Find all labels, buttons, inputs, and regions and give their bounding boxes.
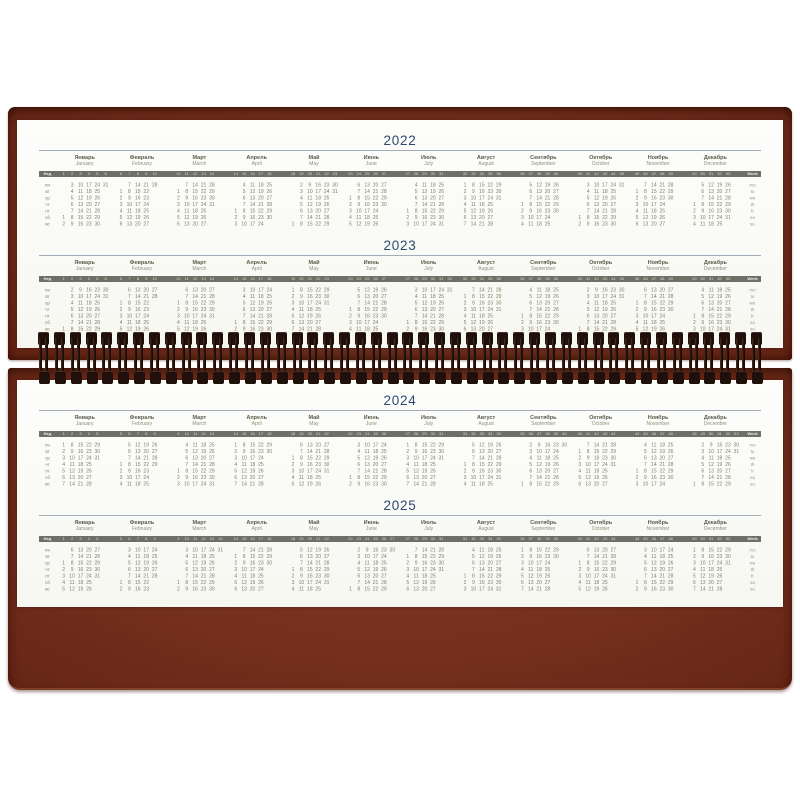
day-number: 29 [724,481,732,488]
week-number: 18 [265,431,273,437]
week-number: 19 [297,171,305,177]
day-number: 6 [576,481,584,488]
day-number: 23 [199,586,207,593]
spiral-coil [70,332,81,384]
month-day-row: 3101724 [228,221,285,228]
day-number: 19 [592,586,600,593]
day-number: 9 [68,221,76,228]
week-number: 23 [355,431,363,437]
week-bar-label-ru: Нед [39,536,56,542]
week-number: 3 [76,276,84,282]
day-number: 17 [650,481,658,488]
month-header: НоябрьNovember [629,259,686,273]
week-number: 36 [494,171,502,177]
day-number: 28 [429,481,437,488]
month-header: ИюльJuly [400,519,457,533]
week-number: 42 [592,431,600,437]
week-number: 39 [552,431,560,437]
month-name-ru: Январь [56,414,113,421]
left-gutter [39,519,56,533]
spiral-hole-bottom [403,371,414,384]
day-number: 29 [380,586,388,593]
day-number: 18 [306,586,314,593]
week-number: 17 [257,276,265,282]
spiral-coil [656,332,667,384]
month-day-row: 5121926 [343,221,400,228]
day-number: 18 [134,481,142,488]
month-header: АвгустAugust [457,519,514,533]
spiral-coil [292,332,303,384]
month-day-row: 29162330 [343,481,400,488]
week-number: 49 [690,276,698,282]
day-number: 16 [650,586,658,593]
week-number: 29 [420,536,428,542]
weekday-label-en: su [744,586,761,593]
month-header: МартMarch [171,414,228,428]
week-number: 45 [641,536,649,542]
month-name-ru: Октябрь [572,259,629,266]
month-day-row: 5121926 [572,586,629,593]
month-header: ЯнварьJanuary [56,414,113,428]
day-number: 17 [191,481,199,488]
spiral-hole-bottom [673,371,684,384]
month-header: ОктябрьOctober [572,414,629,428]
week-number: 23 [322,276,330,282]
month-header: ЯнварьJanuary [56,519,113,533]
spiral-hole-bottom [689,371,700,384]
spiral-hole-bottom [324,371,335,384]
day-number: 29 [322,221,330,228]
week-number [273,536,281,542]
spiral-coil [450,332,461,384]
month-header: ДекабрьDecember [687,259,744,273]
week-number: 17 [257,171,265,177]
day-number: 26 [85,586,93,593]
week-number: 40 [576,536,584,542]
month-name-ru: Июнь [343,259,400,266]
month-day-row: 310172431 [457,586,514,593]
day-number: 30 [93,221,101,228]
week-number: 48 [666,431,674,437]
month-name-en: December [687,526,744,532]
week-number: 40 [552,536,560,542]
month-day-row: 6132027 [228,586,285,593]
month-name-ru: Январь [56,259,113,266]
month-week-numbers: 4445464748 [629,536,686,542]
spiral-coil [196,332,207,384]
spiral-hole-bottom [277,371,288,384]
month-header: МайMay [285,414,342,428]
week-number: 53 [724,536,732,542]
month-name-en: June [343,526,400,532]
week-number: 11 [183,171,191,177]
week-number [560,171,568,177]
day-number [322,586,330,593]
week-number: 45 [633,171,641,177]
week-number: 45 [617,276,625,282]
month-name-en: July [400,266,457,272]
month-name-ru: Июль [400,154,457,161]
day-number [101,481,109,488]
day-number: 23 [142,586,150,593]
day-number [265,586,273,593]
month-name-ru: Октябрь [572,154,629,161]
month-name-en: October [572,266,629,272]
month-week-numbers: 1011121314 [171,276,228,282]
day-number: 2 [174,586,182,593]
week-number: 10 [183,431,191,437]
spiral-coil [672,332,683,384]
month-name-en: September [515,161,572,167]
week-number [675,171,683,177]
week-bar-label-en: Week [744,171,761,177]
month-name-en: May [285,266,342,272]
day-number: 2 [60,221,68,228]
week-number [101,431,109,437]
day-number: 14 [68,481,76,488]
day-number: 28 [85,481,93,488]
month-week-numbers: 3233343536 [457,276,514,282]
month-name-ru: Сентябрь [515,519,572,526]
day-number: 24 [658,481,666,488]
spiral-coil [561,332,572,384]
month-name-en: August [457,526,514,532]
week-number: 16 [248,431,256,437]
month-week-numbers: 1011121314 [171,171,228,177]
week-number-bar: Нед1234556789910111213141516171818192021… [39,431,761,437]
month-name-en: March [171,266,228,272]
spiral-hole-bottom [87,371,98,384]
month-week-numbers: 3132333435 [457,431,514,437]
day-number: 14 [469,221,477,228]
day-number: 14 [527,586,535,593]
week-number: 6 [117,171,125,177]
week-number: 35 [494,536,502,542]
week-number: 12 [199,431,207,437]
day-number: 26 [601,586,609,593]
week-number: 25 [363,171,371,177]
week-number: 14 [216,536,224,542]
month-header: АвгустAugust [457,414,514,428]
month-day-row: 3101724 [629,481,686,488]
month-header: ИюльJuly [400,154,457,168]
month-name-ru: Январь [56,519,113,526]
week-number: 17 [257,431,265,437]
month-day-row: 29162330 [171,586,228,593]
week-number: 1 [60,276,68,282]
month-week-numbers: 123456 [56,276,113,282]
week-number: 14 [232,171,240,177]
week-number: 13 [208,431,216,437]
month-header: ИюньJune [343,154,400,168]
calendar-page-top: 2022ЯнварьJanuaryФевральFebruaryМартMarc… [17,120,783,348]
week-number: 9 [150,431,158,437]
week-number: 30 [429,276,437,282]
month-header: ФевральFebruary [113,414,170,428]
week-number: 19 [289,276,297,282]
spiral-coil [133,332,144,384]
month-name-ru: Май [285,414,342,421]
month-week-numbers: 1415161718 [228,171,285,177]
week-number [675,276,683,282]
month-header: ОктябрьOctober [572,259,629,273]
month-name-ru: Февраль [113,519,170,526]
spiral-coil [719,332,730,384]
week-number: 49 [699,431,707,437]
month-name-en: July [400,421,457,427]
month-week-numbers: 2324252627 [343,171,400,177]
month-name-en: December [687,161,744,167]
spiral-coil [323,332,334,384]
spiral-hole-bottom [356,371,367,384]
days-grid: пн61320273101724310172431714212851219262… [39,547,761,593]
week-number: 22 [346,536,354,542]
spiral-coil [529,332,540,384]
day-number [494,221,502,228]
spiral-hole-bottom [39,371,50,384]
spiral-coil [181,332,192,384]
day-number: 24 [257,221,265,228]
week-number: 24 [363,536,371,542]
week-number [445,431,453,437]
week-number: 39 [543,536,551,542]
week-number: 14 [232,431,240,437]
month-name-ru: Май [285,259,342,266]
day-number: 4 [289,586,297,593]
month-name-ru: Ноябрь [629,259,686,266]
month-week-numbers: 2728293031 [400,431,457,437]
month-name-en: September [515,421,572,427]
day-number: 3 [404,221,412,228]
spiral-coil [497,332,508,384]
month-name-ru: Май [285,154,342,161]
week-number: 9 [142,171,150,177]
week-number: 10 [150,276,158,282]
day-number: 15 [363,586,371,593]
week-number: 33 [469,171,477,177]
month-name-ru: Май [285,519,342,526]
day-number: 25 [543,221,551,228]
month-week-numbers: 3637383940 [515,536,572,542]
month-header: ИюньJune [343,414,400,428]
week-number: 41 [584,171,592,177]
week-number [273,276,281,282]
day-number: 21 [707,586,715,593]
month-header: НоябрьNovember [629,414,686,428]
week-number: 38 [543,431,551,437]
week-number: 15 [240,171,248,177]
month-day-row: 6132027 [629,221,686,228]
week-number: 14 [232,276,240,282]
month-name-ru: Июнь [343,519,400,526]
month-day-row: 6132027 [113,221,170,228]
month-week-numbers: 12345 [56,431,113,437]
week-number: 5 [93,536,101,542]
spiral-coil [276,332,287,384]
week-number: 5 [93,171,101,177]
right-gutter [744,154,761,168]
month-week-numbers: 12345 [56,536,113,542]
day-number: 1 [346,586,354,593]
month-day-row: 4111825 [285,586,342,593]
week-number: 20 [306,431,314,437]
month-name-en: February [113,526,170,532]
week-number: 34 [478,171,486,177]
spiral-hole-bottom [293,371,304,384]
weekday-row: вс71421284111825310172431714212851219262… [39,481,761,488]
month-week-numbers: 3132333435 [457,536,514,542]
week-number [331,431,339,437]
week-number: 23 [331,171,339,177]
day-number: 20 [134,221,142,228]
spiral-coil [86,332,97,384]
week-number: 36 [518,171,526,177]
week-number: 33 [478,431,486,437]
day-number: 22 [543,481,551,488]
day-number: 26 [314,481,322,488]
day-number [724,221,732,228]
week-number: 46 [641,171,649,177]
week-number: 22 [322,171,330,177]
month-header: МартMarch [171,259,228,273]
month-name-en: August [457,266,514,272]
day-number: 9 [355,481,363,488]
month-header: ОктябрьOctober [572,154,629,168]
spiral-hole-bottom [578,371,589,384]
month-name-ru: Ноябрь [629,414,686,421]
day-number [159,221,167,228]
month-header: ИюньJune [343,519,400,533]
spiral-hole-bottom [736,371,747,384]
week-number: 22 [322,536,330,542]
week-number: 8 [134,171,142,177]
week-number: 5 [117,536,125,542]
week-number [445,536,453,542]
week-number: 24 [355,276,363,282]
day-number: 23 [601,221,609,228]
week-number [331,276,339,282]
day-number: 14 [240,481,248,488]
spiral-coil [545,332,556,384]
day-number: 7 [60,481,68,488]
week-number: 36 [518,536,526,542]
month-name-en: June [343,421,400,427]
month-week-numbers: 3637383940 [515,171,572,177]
week-number: 53 [724,171,732,177]
week-number: 52 [724,431,732,437]
month-week-numbers: 678910 [113,276,170,282]
week-number: 8 [142,431,150,437]
month-name-ru: Август [457,414,514,421]
day-number: 2 [117,586,125,593]
day-number: 20 [650,221,658,228]
month-name-en: August [457,421,514,427]
month-week-numbers: 123456 [56,171,113,177]
month-week-numbers: 1819202122 [285,536,342,542]
month-name-en: March [171,161,228,167]
week-number [445,171,453,177]
week-number: 47 [658,431,666,437]
week-number: 7 [134,536,142,542]
month-name-en: October [572,421,629,427]
year-label: 2023 [39,238,761,253]
day-number: 13 [641,221,649,228]
week-number: 13 [199,276,207,282]
year-strip-content: 2025ЯнварьJanuaryФевральFebruaryМартMarc… [39,498,761,597]
month-name-ru: Июль [400,414,457,421]
spiral-hole-bottom [514,371,525,384]
day-number: 5 [346,221,354,228]
day-number [609,481,617,488]
week-number: 29 [420,431,428,437]
week-number: 40 [576,171,584,177]
day-number: 10 [240,221,248,228]
week-number: 38 [535,536,543,542]
week-number: 15 [240,536,248,542]
week-number: 52 [715,536,723,542]
weekday-label-en: su [744,221,761,228]
week-number: 42 [592,171,600,177]
month-names-row: ЯнварьJanuaryФевральFebruaryМартMarchАпр… [39,154,761,168]
day-number [322,481,330,488]
week-number: 19 [297,431,305,437]
day-number [666,221,674,228]
month-name-ru: Декабрь [687,154,744,161]
day-number [675,586,683,593]
day-number: 14 [699,586,707,593]
spiral-coil [735,332,746,384]
week-number: 23 [355,536,363,542]
week-number: 44 [609,431,617,437]
month-header: ФевральFebruary [113,519,170,533]
right-gutter [744,519,761,533]
left-gutter [39,414,56,428]
month-day-row: 4111825 [515,221,572,228]
month-week-numbers: 56789 [113,536,170,542]
month-week-numbers: 484950515253 [687,431,744,437]
week-number: 35 [486,276,494,282]
week-number: 13 [208,536,216,542]
spiral-hole-bottom [308,371,319,384]
day-number: 5 [60,586,68,593]
week-bar-label-en: Week [744,431,761,437]
day-number: 20 [420,586,428,593]
week-number: 35 [518,431,526,437]
week-number: 4 [85,431,93,437]
day-number: 30 [609,221,617,228]
week-number: 37 [527,276,535,282]
month-day-row: 6132027 [171,221,228,228]
weekday-label-ru: вс [39,221,56,228]
week-number: 26 [380,431,388,437]
spiral-coil [355,332,366,384]
week-number: 20 [297,276,305,282]
week-number: 40 [560,431,568,437]
week-number: 29 [420,276,428,282]
day-number [380,221,388,228]
month-week-numbers: 56789 [113,431,170,437]
week-number: 16 [248,276,256,282]
year-strip-2024: 2024ЯнварьJanuaryФевральFebruaryМартMarc… [39,393,761,492]
week-bar-label-ru: Нед [39,431,56,437]
day-number [552,586,560,593]
week-number: 48 [666,536,674,542]
week-number: 26 [371,171,379,177]
month-day-row: 310172431 [400,221,457,228]
day-number: 1 [518,481,526,488]
spiral-coil [703,332,714,384]
spiral-coil [640,332,651,384]
